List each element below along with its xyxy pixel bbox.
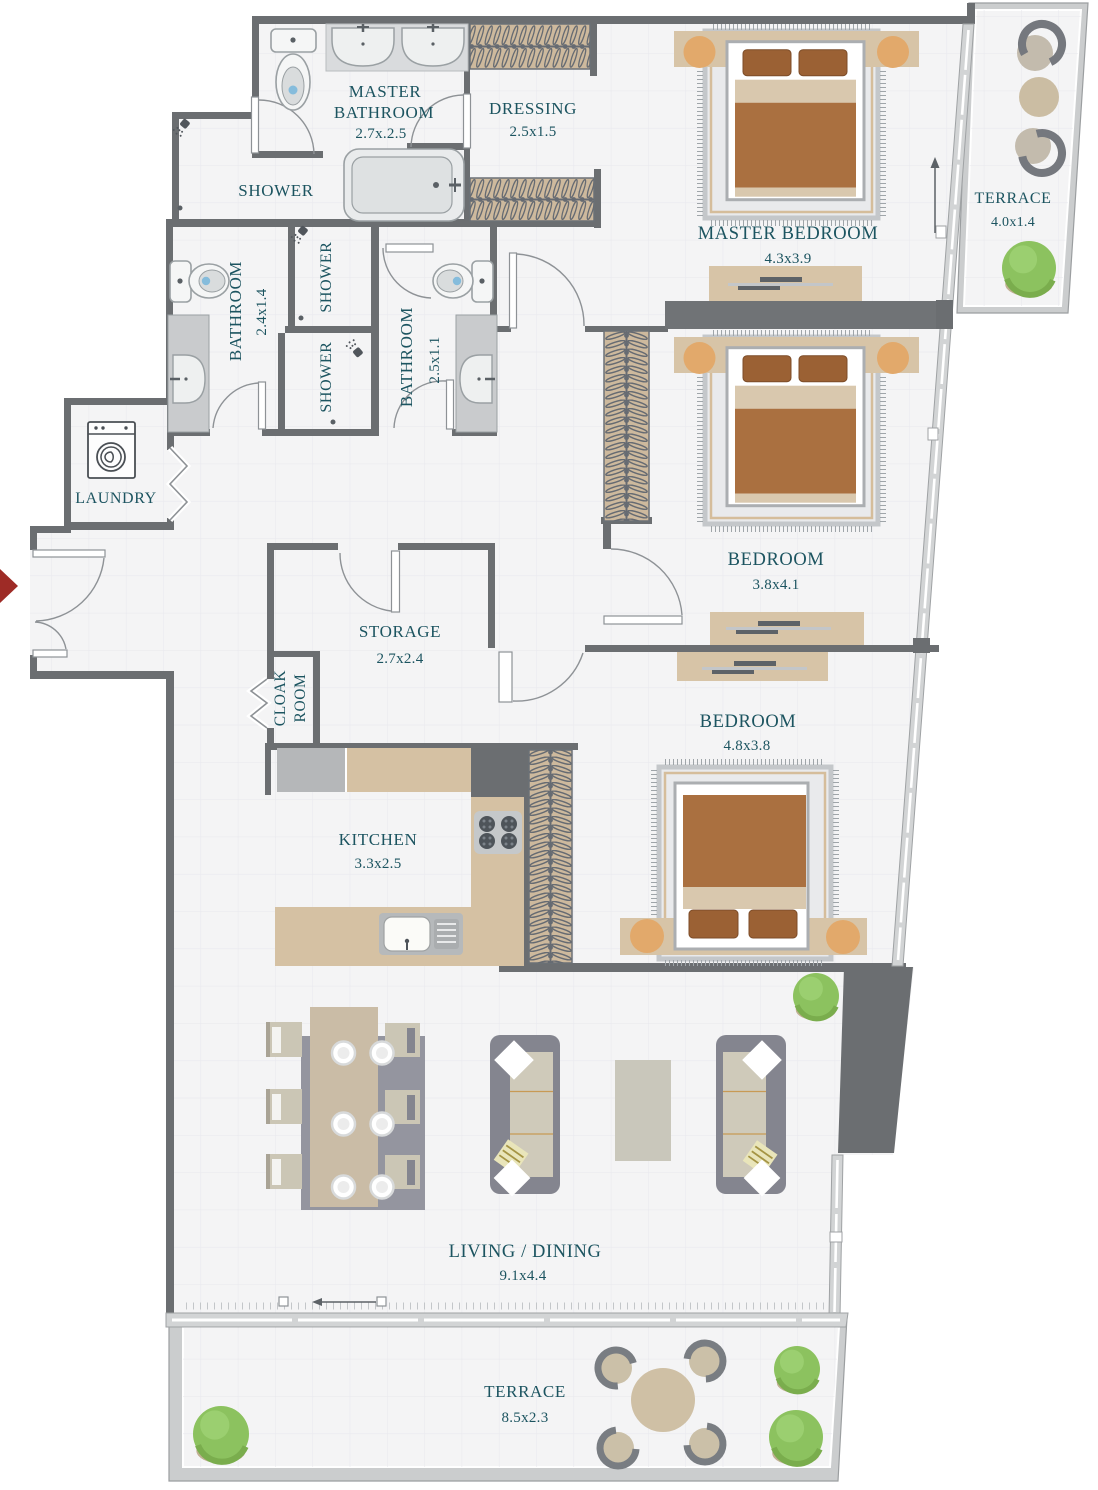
svg-text:LAUNDRY: LAUNDRY (75, 490, 157, 507)
svg-text:SHOWER: SHOWER (238, 181, 313, 200)
svg-text:BATHROOM: BATHROOM (226, 261, 245, 361)
svg-text:LIVING / DINING: LIVING / DINING (449, 1242, 602, 1262)
svg-text:4.3x3.9: 4.3x3.9 (764, 251, 811, 267)
svg-text:2.7x2.4: 2.7x2.4 (376, 651, 423, 667)
svg-text:TERRACE: TERRACE (974, 190, 1051, 207)
svg-text:ROOM: ROOM (292, 674, 309, 723)
svg-text:4.0x1.4: 4.0x1.4 (991, 215, 1035, 230)
svg-text:SHOWER: SHOWER (318, 241, 335, 312)
svg-text:3.3x2.5: 3.3x2.5 (354, 856, 401, 872)
svg-text:8.5x2.3: 8.5x2.3 (501, 1410, 548, 1426)
svg-text:BATHROOM: BATHROOM (397, 307, 416, 407)
svg-text:2.5x1.1: 2.5x1.1 (427, 336, 443, 383)
svg-text:BATHROOM: BATHROOM (334, 103, 434, 122)
svg-text:CLOAK: CLOAK (272, 670, 289, 727)
svg-text:BEDROOM: BEDROOM (728, 550, 825, 570)
svg-text:TERRACE: TERRACE (484, 1382, 566, 1401)
svg-text:2.4x1.4: 2.4x1.4 (254, 288, 270, 335)
svg-text:3.8x4.1: 3.8x4.1 (752, 577, 799, 593)
svg-text:SHOWER: SHOWER (318, 341, 335, 412)
svg-text:BEDROOM: BEDROOM (700, 712, 797, 732)
svg-text:4.8x3.8: 4.8x3.8 (723, 738, 770, 754)
svg-text:STORAGE: STORAGE (359, 622, 441, 641)
svg-text:KITCHEN: KITCHEN (339, 830, 418, 849)
svg-text:DRESSING: DRESSING (489, 99, 577, 118)
svg-text:MASTER: MASTER (349, 82, 422, 101)
svg-text:9.1x4.4: 9.1x4.4 (499, 1268, 546, 1284)
svg-text:MASTER BEDROOM: MASTER BEDROOM (698, 224, 879, 244)
svg-text:2.5x1.5: 2.5x1.5 (509, 124, 556, 140)
svg-text:2.7x.2.5: 2.7x.2.5 (355, 126, 406, 142)
